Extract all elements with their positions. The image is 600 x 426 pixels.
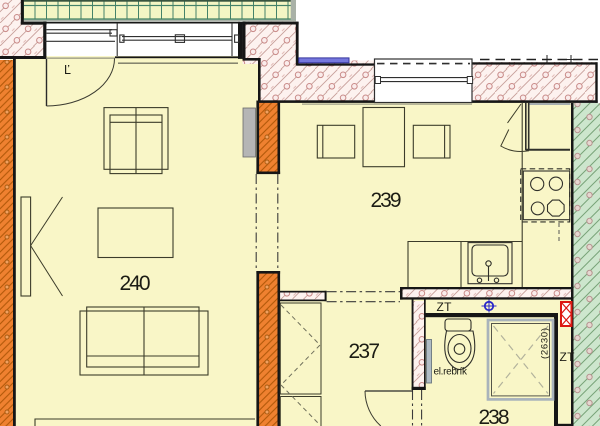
- svg-text:el.rebrík: el.rebrík: [434, 367, 469, 378]
- svg-text:ZT: ZT: [560, 350, 576, 364]
- svg-text:(2630): (2630): [540, 328, 551, 359]
- svg-text:ZT: ZT: [437, 300, 453, 314]
- svg-text:Ľ: Ľ: [64, 63, 71, 77]
- svg-text:239: 239: [371, 189, 402, 212]
- svg-text:237: 237: [349, 340, 381, 363]
- svg-text:238: 238: [479, 406, 510, 426]
- svg-text:240: 240: [120, 272, 151, 295]
